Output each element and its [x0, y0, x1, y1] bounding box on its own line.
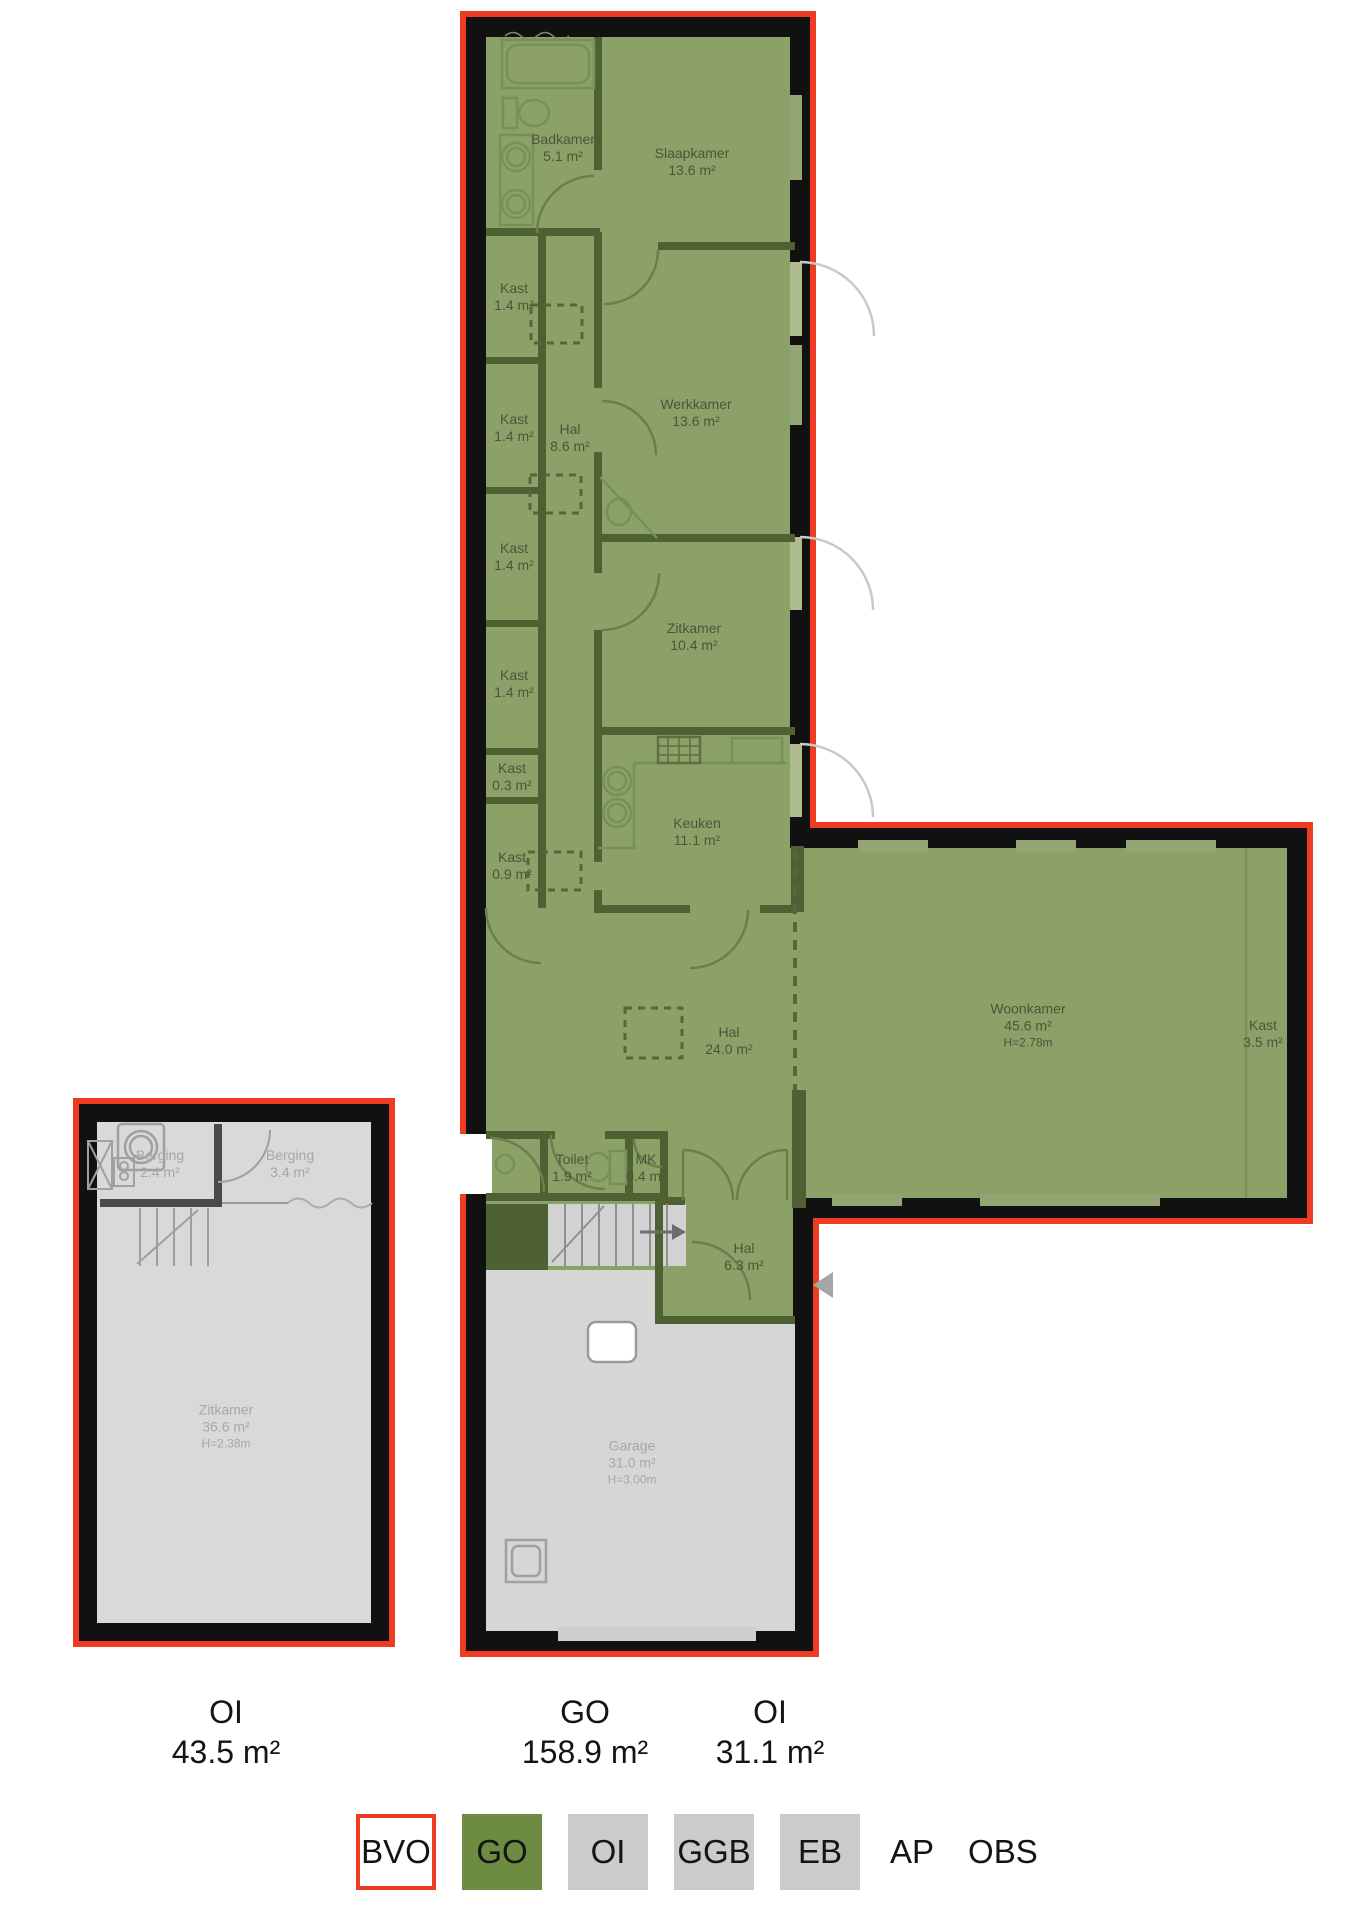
room-label-slaapkamer: Slaapkamer13.6 m² [655, 145, 730, 179]
room-label-werkkamer: Werkkamer13.6 m² [660, 396, 731, 430]
room-label-berging1: Berging2.4 m² [136, 1147, 184, 1181]
annex-floorplan [88, 1113, 380, 1632]
room-label-hal-midden: Hal24.0 m² [705, 1024, 752, 1058]
room-label-kast3: Kast1.4 m² [494, 540, 534, 574]
room-label-annex-zitkamer: Zitkamer36.6 m²H=2.38m [199, 1402, 253, 1453]
room-label-kast2: Kast1.4 m² [494, 411, 534, 445]
total-oi-right: OI 31.1 m² [716, 1692, 824, 1772]
floorplan-drawing [0, 0, 1358, 1920]
legend-item-eb: EB [780, 1814, 860, 1890]
room-label-kast7: Kast3.5 m² [1243, 1017, 1283, 1051]
annex-outline-wall [88, 1113, 380, 1632]
front-door-gap [458, 1134, 492, 1194]
room-label-kast6: Kast0.9 m² [492, 849, 532, 883]
garage-door [558, 1627, 756, 1641]
room-label-mk: MK0.4 m² [626, 1151, 666, 1185]
total-oi-left: OI 43.5 m² [172, 1692, 280, 1772]
room-label-hal-entree: Hal6.3 m² [724, 1240, 764, 1274]
total-go: GO 158.9 m² [522, 1692, 648, 1772]
room-label-badkamer: Badkamer5.1 m² [531, 131, 595, 165]
room-label-kast4: Kast1.4 m² [494, 667, 534, 701]
room-label-berging2: Berging3.4 m² [266, 1147, 314, 1181]
legend-item-bvo: BVO [356, 1814, 436, 1890]
main-floorplan [458, 27, 1297, 1641]
room-label-hal-boven: Hal8.6 m² [550, 421, 590, 455]
room-label-keuken: Keuken11.1 m² [673, 815, 720, 849]
room-label-kast1: Kast1.4 m² [494, 280, 534, 314]
room-label-kast5: Kast0.3 m² [492, 760, 532, 794]
floorplan-canvas: Badkamer5.1 m² Slaapkamer13.6 m² Kast1.4… [0, 0, 1358, 1920]
legend-item-go: GO [462, 1814, 542, 1890]
legend-item-obs: OBS [964, 1814, 1042, 1890]
room-label-zitkamer: Zitkamer10.4 m² [667, 620, 721, 654]
legend: BVO GO OI GGB EB AP OBS [356, 1814, 1042, 1890]
room-label-garage: Garage31.0 m²H=3.00m [607, 1438, 656, 1489]
freezer-icon [588, 1322, 636, 1362]
room-label-toilet: Toilet1.9 m² [552, 1151, 592, 1185]
stairwell-patch [486, 1204, 548, 1270]
legend-item-ggb: GGB [674, 1814, 754, 1890]
legend-item-oi: OI [568, 1814, 648, 1890]
room-label-woonkamer: Woonkamer45.6 m²H=2.78m [990, 1001, 1065, 1052]
legend-item-ap: AP [886, 1814, 938, 1890]
